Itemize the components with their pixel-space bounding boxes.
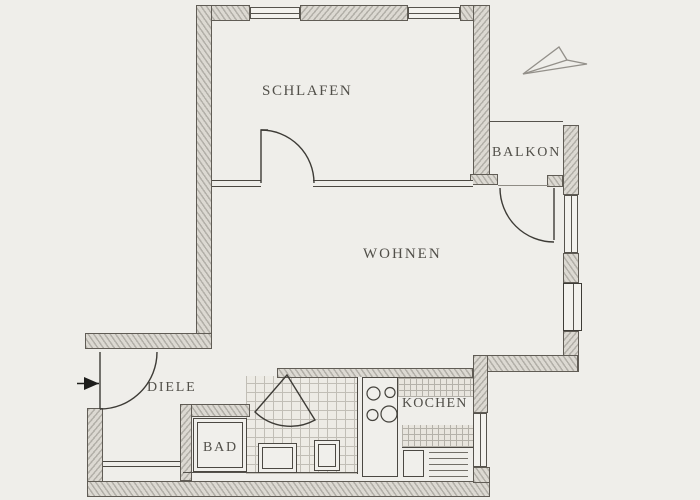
- kitchen-east-wall-lower: [473, 467, 490, 483]
- washbasin: [258, 443, 297, 473]
- wohnen-room-label: WOHNEN: [363, 246, 442, 263]
- east-wall-mid: [563, 253, 579, 283]
- schlafen-right-wall: [473, 5, 490, 183]
- schlafen-south-wall-left: [212, 180, 261, 187]
- schlafen-window-right: [408, 7, 460, 19]
- wohnen-window-upper: [564, 195, 578, 253]
- diele-closet-line: [103, 461, 180, 467]
- kitchen-sink: [403, 450, 424, 477]
- entrance-arrow-icon: [77, 377, 99, 390]
- wohnen-south-wall: [473, 355, 578, 372]
- kitchen-east-wall-upper: [473, 355, 488, 413]
- stove-unit: [362, 377, 398, 477]
- kitchen-counter-top: [398, 378, 473, 397]
- schlafen-room-label: SCHLAFEN: [262, 83, 352, 100]
- floor-plan: SCHLAFEN BALKON WOHNEN DIELE BAD KOCHEN: [0, 0, 700, 500]
- schlafen-door-leaf: [261, 130, 268, 183]
- balkon-room-label: BALKON: [492, 145, 561, 161]
- toilet-inner-edge: [318, 444, 336, 467]
- schlafen-left-wall: [196, 5, 212, 348]
- bad-west-wall: [180, 404, 192, 481]
- kitchen-counter-mid: [402, 425, 473, 448]
- kochen-room-label: KOCHEN: [402, 396, 468, 412]
- diele-north-wall: [85, 333, 212, 349]
- diele-room-label: DIELE: [147, 380, 196, 396]
- schlafen-south-wall-right: [313, 180, 473, 187]
- kitchen-window: [473, 413, 487, 467]
- schlafen-window-left: [250, 7, 300, 19]
- sink-drainer-lines: [429, 452, 468, 478]
- washbasin-inner-edge: [262, 447, 293, 469]
- balcony-door-threshold: [498, 185, 548, 186]
- wohnen-window-lower: [563, 283, 582, 331]
- schlafen-door-swing-arc: [261, 130, 314, 183]
- bad-room-label: BAD: [203, 440, 238, 456]
- east-wall-upper: [563, 125, 579, 195]
- balkon-door-left-jamb: [470, 174, 498, 185]
- toilet: [314, 440, 340, 471]
- balkon-door-swing-arc: [500, 188, 554, 242]
- wall-top-segment-mid: [300, 5, 408, 21]
- north-arrow-icon: [523, 47, 587, 74]
- balkon-door-right-jamb: [547, 175, 563, 187]
- bottom-wall: [87, 481, 490, 497]
- balcony-railing-line: [490, 121, 563, 122]
